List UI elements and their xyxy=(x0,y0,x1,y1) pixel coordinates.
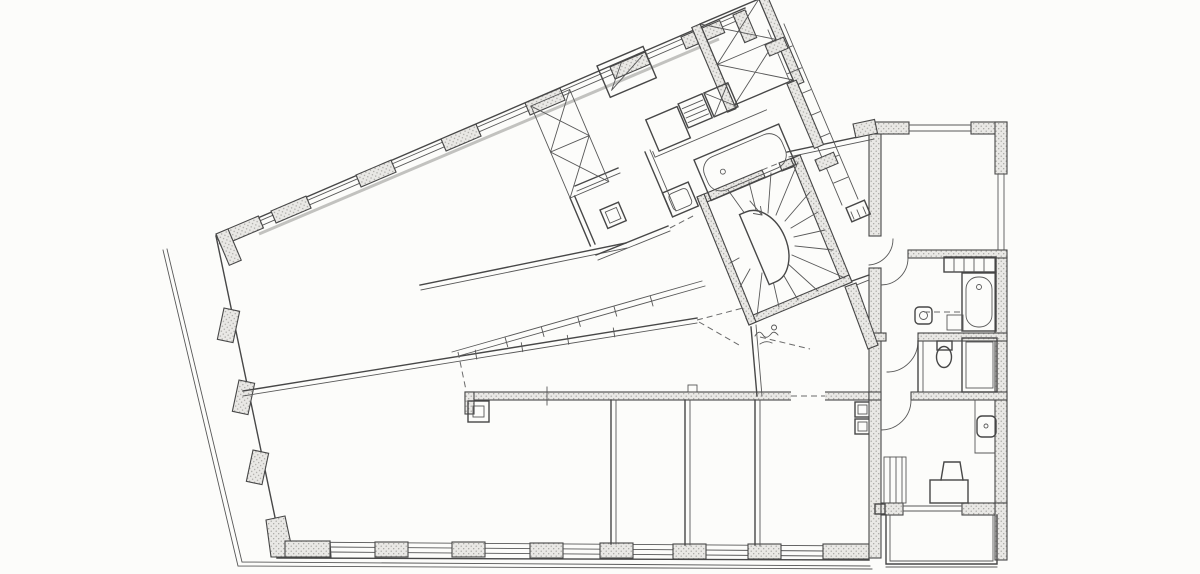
east-wing-west-wall xyxy=(869,130,881,236)
plan-layer xyxy=(0,0,1200,574)
balcony-wall-pier xyxy=(881,503,903,515)
paper-background xyxy=(0,0,1200,574)
south-wall-pier xyxy=(375,542,408,557)
floor-plan-page xyxy=(0,0,1200,574)
east-wing-east-wall xyxy=(995,122,1007,174)
south-wall-pier xyxy=(452,542,485,557)
south-wall-pier xyxy=(530,543,563,558)
south-wall-pier xyxy=(823,544,869,559)
south-wall-pier xyxy=(673,544,706,559)
floor-plan-drawing xyxy=(0,0,1200,574)
south-wall-pier xyxy=(600,543,633,558)
band-wall-east xyxy=(911,392,1007,400)
south-wall-pier xyxy=(285,541,330,557)
band-wall-stub xyxy=(869,392,881,400)
south-wall-pier xyxy=(748,544,781,559)
balcony-wall-pier xyxy=(962,503,995,515)
